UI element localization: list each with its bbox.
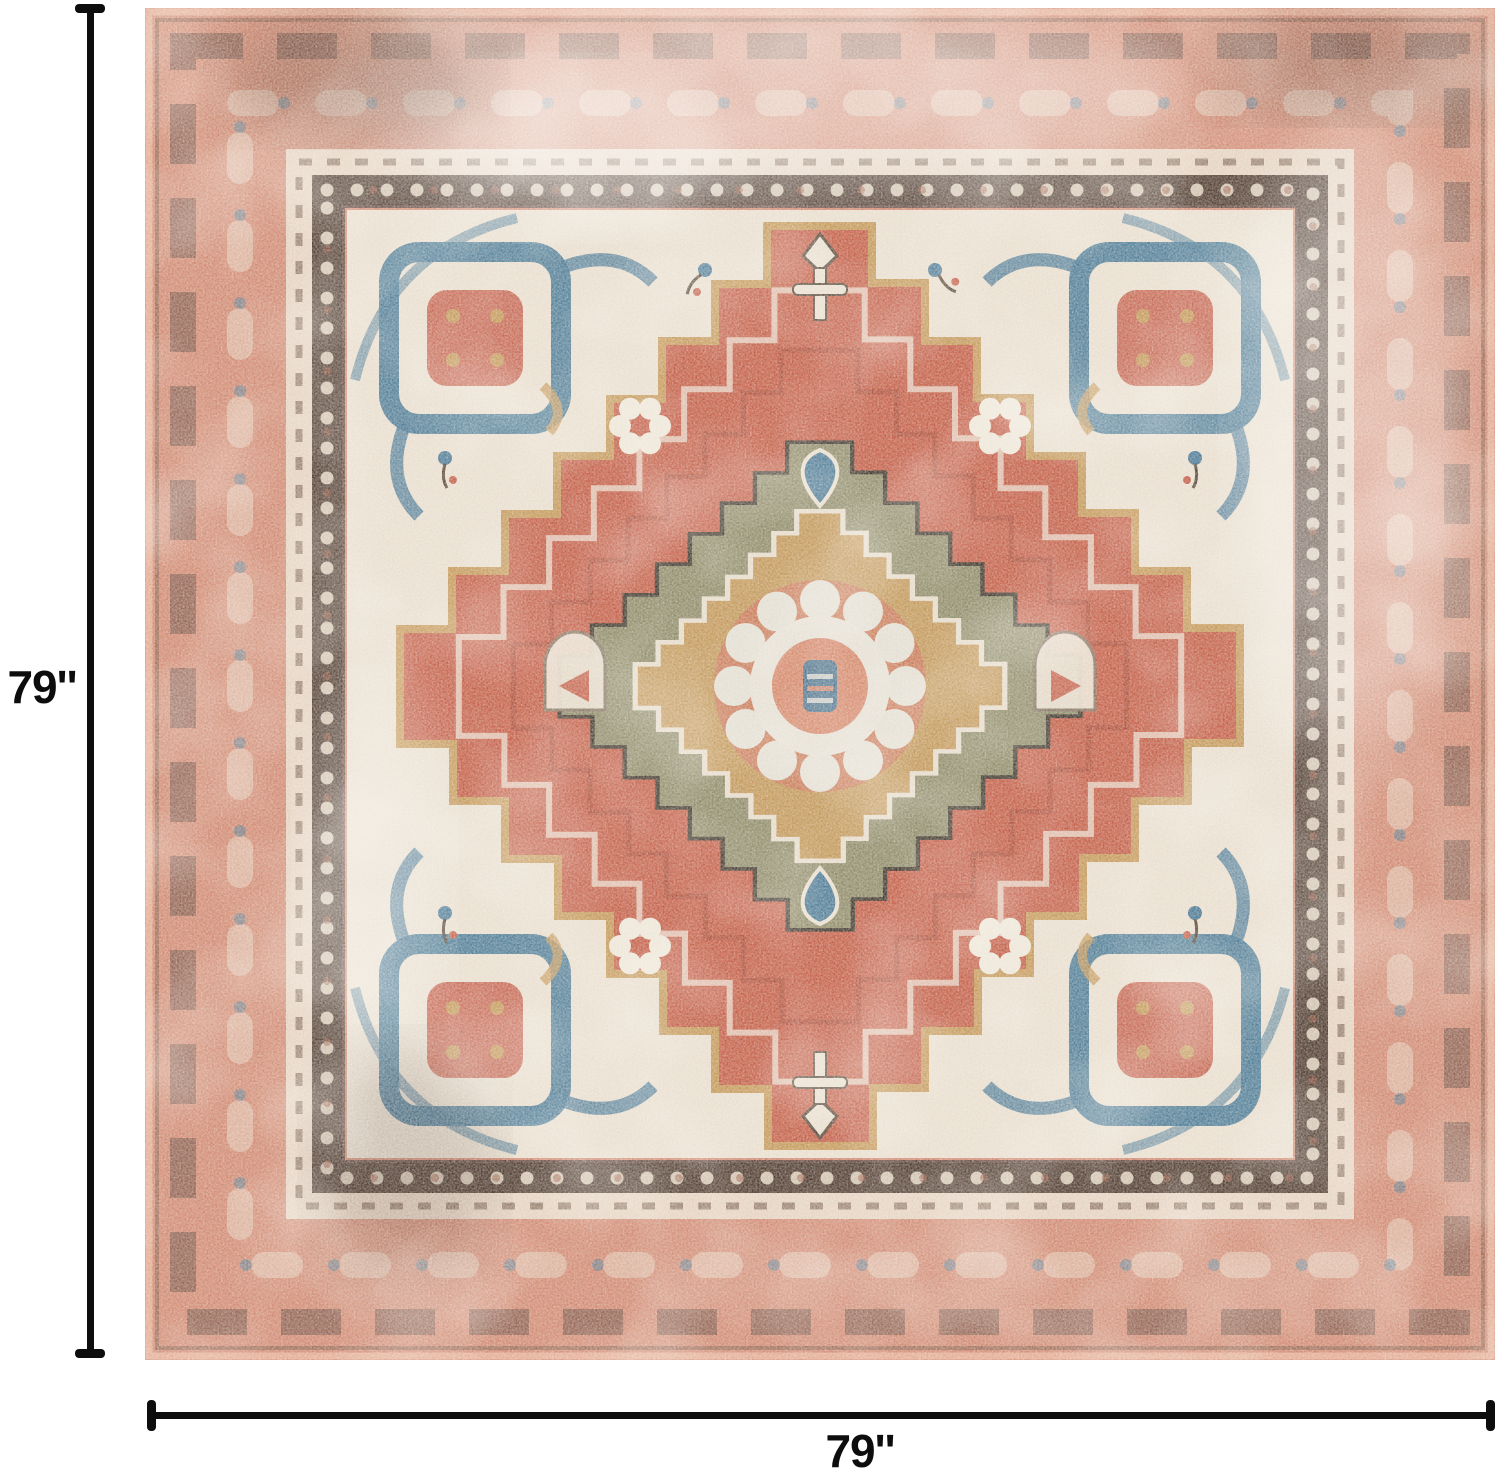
rug-image [145, 8, 1495, 1360]
height-dimension-cap-bottom [75, 1349, 105, 1358]
rug-texture-blotch [145, 8, 1495, 1360]
width-dimension-cap-left [147, 1400, 156, 1431]
width-dimension-cap-right [1486, 1400, 1495, 1431]
width-dimension-line [150, 1412, 1492, 1419]
height-dimension-label: 79'' [0, 664, 84, 710]
width-dimension-label: 79'' [792, 1428, 928, 1470]
product-image-canvas: 79'' 79'' [0, 0, 1500, 1470]
rug-graphic [145, 8, 1495, 1360]
height-dimension-line [87, 8, 94, 1354]
height-dimension-cap-top [75, 4, 105, 13]
